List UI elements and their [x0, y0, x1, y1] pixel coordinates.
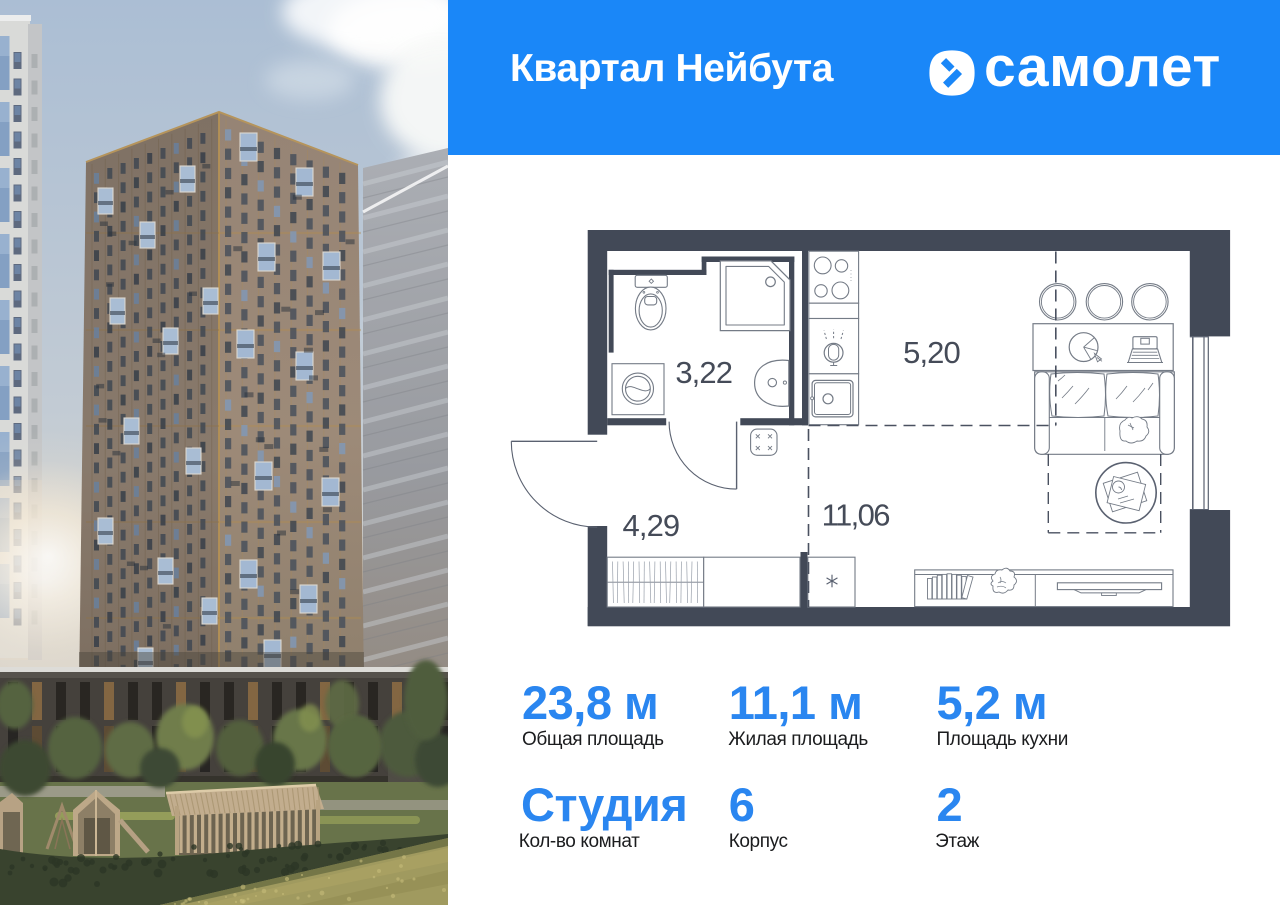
- svg-text:3,22: 3,22: [675, 355, 732, 390]
- svg-text:11,06: 11,06: [822, 497, 890, 532]
- svg-text:5,20: 5,20: [903, 335, 960, 370]
- svg-text:4,29: 4,29: [623, 508, 680, 543]
